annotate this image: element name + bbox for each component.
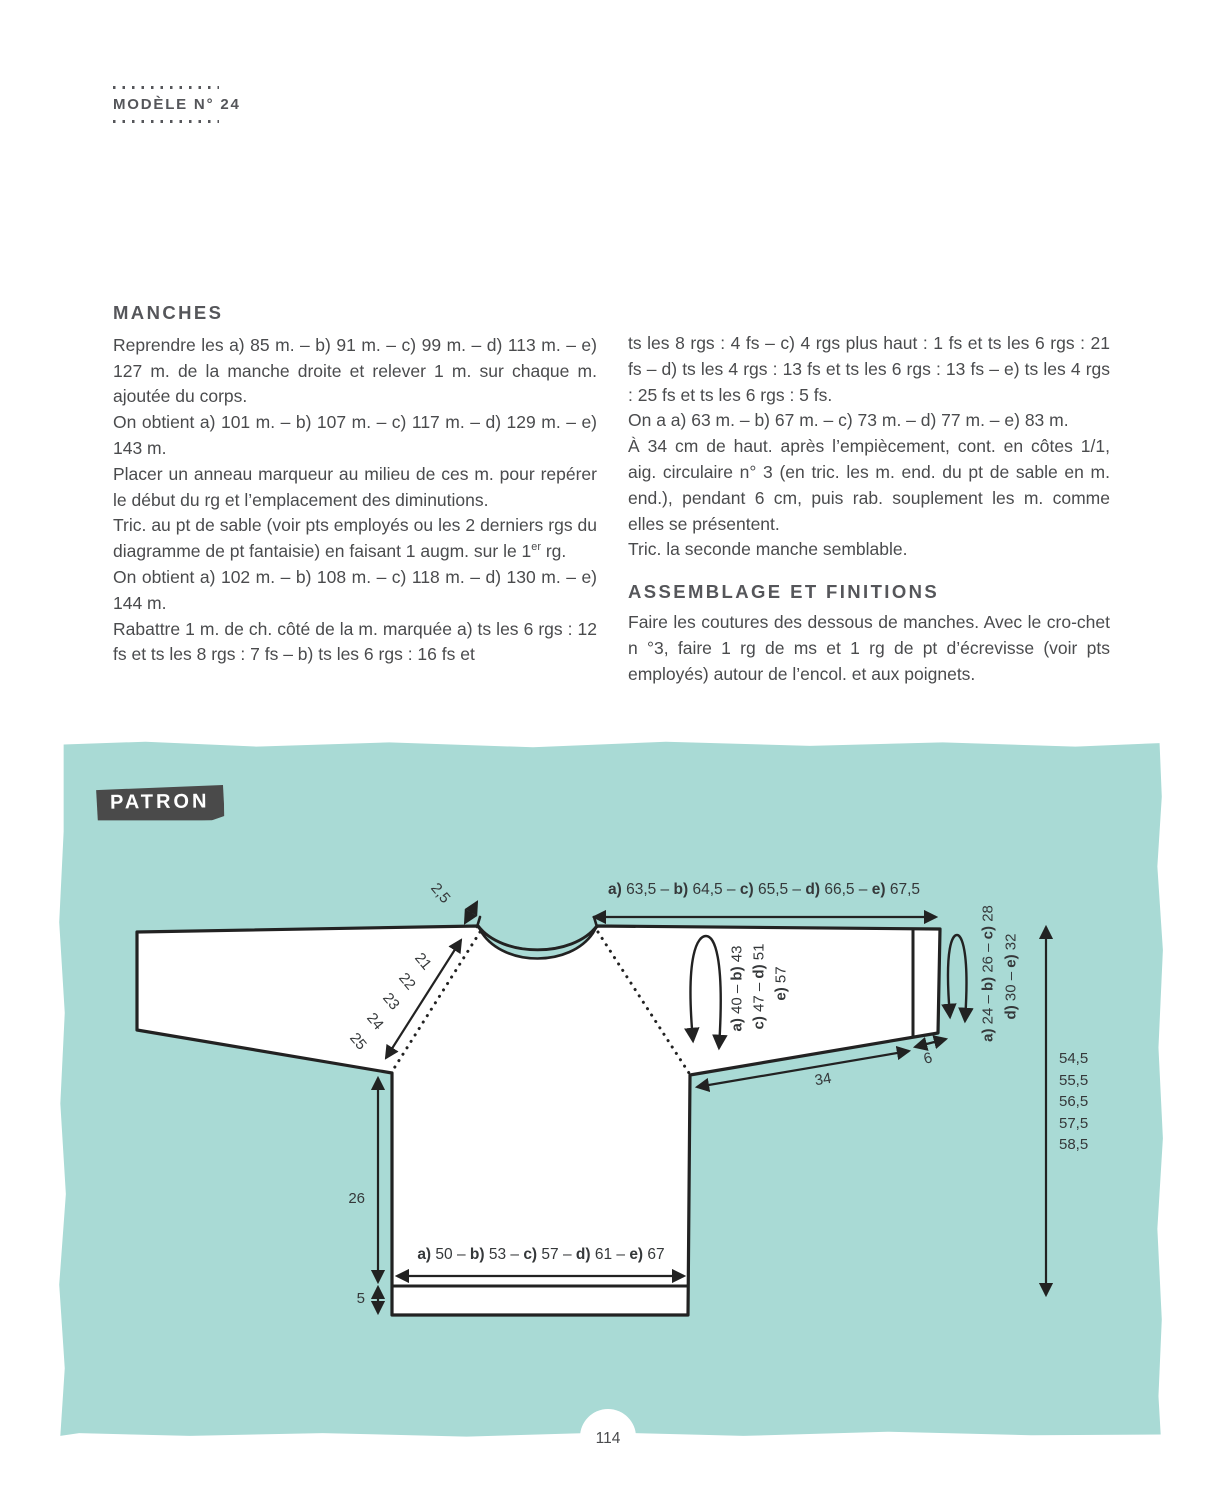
section-title-finitions: ASSEMBLAGE ET FINITIONS bbox=[628, 579, 1110, 605]
label-cuff-circumference-1: a) 24 – b) 26 – c) 28 bbox=[980, 874, 997, 1074]
left-column: MANCHES Reprendre les a) 85 m. – b) 91 m… bbox=[113, 300, 597, 668]
paragraph: Rabattre 1 m. de ch. côté de la m. marqu… bbox=[113, 617, 597, 669]
neckband-measure-arrow bbox=[465, 902, 477, 923]
label-upper-arm-1: a) 40 – b) 43 bbox=[729, 914, 746, 1064]
patron-label: PATRON bbox=[95, 784, 225, 822]
paragraph: On a a) 63 m. – b) 67 m. – c) 73 m. – d)… bbox=[628, 408, 1110, 434]
section-title-manches: MANCHES bbox=[113, 300, 597, 326]
sweater-schematic bbox=[57, 741, 1164, 1438]
label-rib-height: 5 bbox=[325, 1290, 365, 1307]
total-height-value: 57,5 bbox=[1059, 1113, 1088, 1135]
total-height-value: 58,5 bbox=[1059, 1134, 1088, 1156]
label-upper-arm-3: e) 57 bbox=[773, 909, 790, 1059]
label-total-heights: 54,5 55,5 56,5 57,5 58,5 bbox=[1059, 1048, 1088, 1156]
pattern-page: { "header": { "title": "MODÈLE N° 24" },… bbox=[0, 0, 1218, 1500]
neckband-end-ticks bbox=[477, 917, 597, 927]
label-cuff-circumference-2: d) 30 – e) 32 bbox=[1003, 877, 1020, 1077]
label-body-width: a) 50 – b) 53 – c) 57 – d) 61 – e) 67 bbox=[397, 1246, 685, 1264]
page-title: MODÈLE N° 24 bbox=[113, 96, 233, 113]
paragraph: On obtient a) 101 m. – b) 107 m. – c) 11… bbox=[113, 410, 597, 462]
paragraph: Tric. la seconde manche semblable. bbox=[628, 537, 1110, 563]
label-body-height: 26 bbox=[323, 1190, 365, 1207]
model-header: MODÈLE N° 24 bbox=[113, 86, 233, 123]
cuff-loop bbox=[948, 935, 966, 1021]
label-upper-arm-2: c) 47 – d) 51 bbox=[751, 912, 768, 1062]
cuff-height-arrow bbox=[915, 1039, 946, 1047]
paragraph: Tric. au pt de sable (voir pts employés … bbox=[113, 513, 597, 565]
right-column: ts les 8 rgs : 4 fs – c) 4 rgs plus haut… bbox=[628, 300, 1110, 687]
paragraph: Faire les coutures des dessous de manche… bbox=[628, 610, 1110, 687]
page-number: 114 bbox=[580, 1409, 636, 1465]
paragraph: Reprendre les a) 85 m. – b) 91 m. – c) 9… bbox=[113, 333, 597, 410]
total-height-value: 54,5 bbox=[1059, 1048, 1088, 1070]
paragraph: À 34 cm de haut. après l’empiècement, co… bbox=[628, 434, 1110, 537]
patron-panel: PATRON a) 63,5 – b) 64,5 – c) 65,5 – d) … bbox=[57, 741, 1164, 1438]
paragraph: Placer un anneau marqueur au milieu de c… bbox=[113, 462, 597, 514]
total-height-value: 56,5 bbox=[1059, 1091, 1088, 1113]
paragraph: ts les 8 rgs : 4 fs – c) 4 rgs plus haut… bbox=[628, 331, 1110, 408]
dotted-rule-top bbox=[113, 86, 219, 89]
total-height-value: 55,5 bbox=[1059, 1070, 1088, 1092]
paragraph: On obtient a) 102 m. – b) 108 m. – c) 11… bbox=[113, 565, 597, 617]
dotted-rule-bottom bbox=[113, 120, 219, 123]
label-yoke-width: a) 63,5 – b) 64,5 – c) 65,5 – d) 66,5 – … bbox=[574, 881, 954, 899]
